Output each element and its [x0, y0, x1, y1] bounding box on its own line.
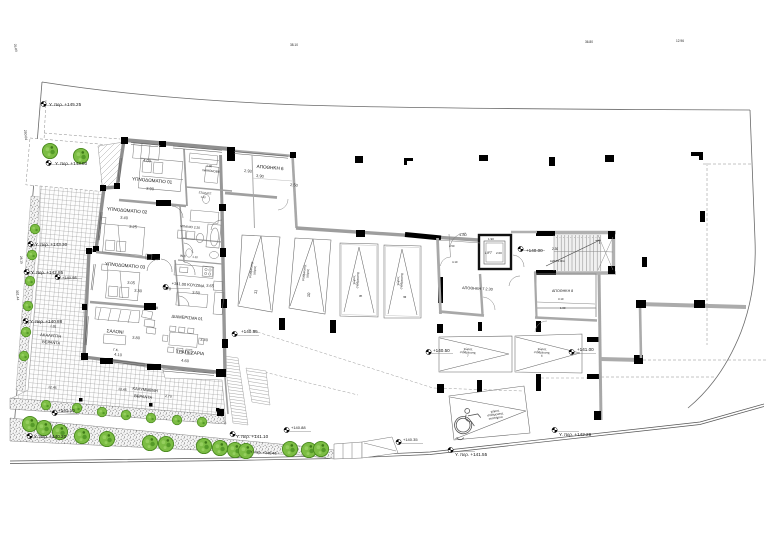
svg-text:3.40: 3.40: [200, 337, 209, 343]
svg-text:2.70: 2.70: [165, 394, 172, 399]
svg-text:1.90: 1.90: [488, 237, 494, 241]
svg-text:28.15: 28.15: [19, 256, 24, 265]
svg-text:4.60: 4.60: [181, 358, 190, 364]
svg-text:+141.10: +141.10: [58, 408, 75, 413]
svg-text:1.40: 1.40: [200, 195, 206, 200]
svg-text:1.70: 1.70: [163, 286, 172, 292]
svg-text:2.50: 2.50: [449, 244, 455, 248]
svg-text:4.00: 4.00: [143, 158, 152, 164]
svg-text:38.10: 38.10: [290, 43, 298, 47]
svg-text:3.05: 3.05: [127, 280, 136, 286]
svg-text:+141.00: +141.00: [577, 347, 594, 352]
svg-text:3.65: 3.65: [206, 283, 215, 289]
svg-text:2.00: 2.00: [496, 251, 502, 255]
svg-text:1.00: 1.00: [560, 306, 566, 310]
svg-text:Υ. περ. +142.29: Υ. περ. +142.29: [559, 432, 592, 437]
svg-text:ΔΙΑΣΤ.0.90m: ΔΙΑΣΤ.0.90m: [550, 259, 565, 263]
svg-text:1.85: 1.85: [50, 324, 57, 329]
svg-text:+140.35: +140.35: [403, 437, 418, 442]
svg-text:36.80: 36.80: [585, 40, 593, 44]
svg-text:4.10: 4.10: [114, 352, 123, 358]
svg-text:ΑΠΟΘΗΚΗ 8: ΑΠΟΘΗΚΗ 8: [552, 289, 573, 293]
svg-text:Υ. περ. +145.25: Υ. περ. +145.25: [49, 102, 82, 107]
svg-text:Υ. περ. +140.20: Υ. περ. +140.20: [34, 434, 67, 439]
svg-text:4.10: 4.10: [452, 260, 458, 264]
svg-text:2.50: 2.50: [290, 182, 299, 188]
svg-text:Υ. περ. +141.55: Υ. περ. +141.55: [455, 452, 488, 457]
svg-text:Υ. περ. +140.88: Υ. περ. +140.88: [30, 319, 63, 324]
svg-text:W.C: W.C: [180, 254, 187, 259]
svg-text:3.10: 3.10: [558, 297, 564, 301]
svg-text:Υ. περ. +141.10: Υ. περ. +141.10: [236, 434, 269, 439]
svg-text:3.90: 3.90: [256, 173, 265, 179]
svg-text:+140.98: +140.98: [62, 275, 77, 280]
svg-text:+140.00: +140.00: [526, 248, 543, 253]
svg-text:LIFT: LIFT: [485, 251, 493, 255]
svg-text:3.30: 3.30: [134, 288, 143, 294]
svg-text:3.40: 3.40: [120, 215, 129, 221]
svg-text:+140.88: +140.88: [291, 425, 306, 430]
svg-text:3.50: 3.50: [192, 290, 201, 296]
svg-text:1.80: 1.80: [459, 232, 468, 237]
svg-text:3.80: 3.80: [132, 335, 141, 341]
svg-text:12.96: 12.96: [676, 39, 684, 43]
svg-text:Υ. περ. +143.30: Υ. περ. +143.30: [35, 242, 68, 247]
svg-text:+140.50: +140.50: [433, 348, 450, 353]
svg-text:3.25: 3.25: [129, 224, 138, 230]
svg-text:Υ. περ. +142.85: Υ. περ. +142.85: [31, 270, 64, 275]
svg-text:2.30: 2.30: [552, 247, 558, 251]
svg-text:Υ. περ. +143.80: Υ. περ. +143.80: [55, 161, 88, 166]
svg-text:3.90: 3.90: [146, 186, 155, 192]
svg-text:1.10: 1.10: [192, 255, 198, 259]
svg-text:+140.85: +140.85: [241, 329, 258, 334]
svg-text:2.93: 2.93: [244, 168, 253, 174]
